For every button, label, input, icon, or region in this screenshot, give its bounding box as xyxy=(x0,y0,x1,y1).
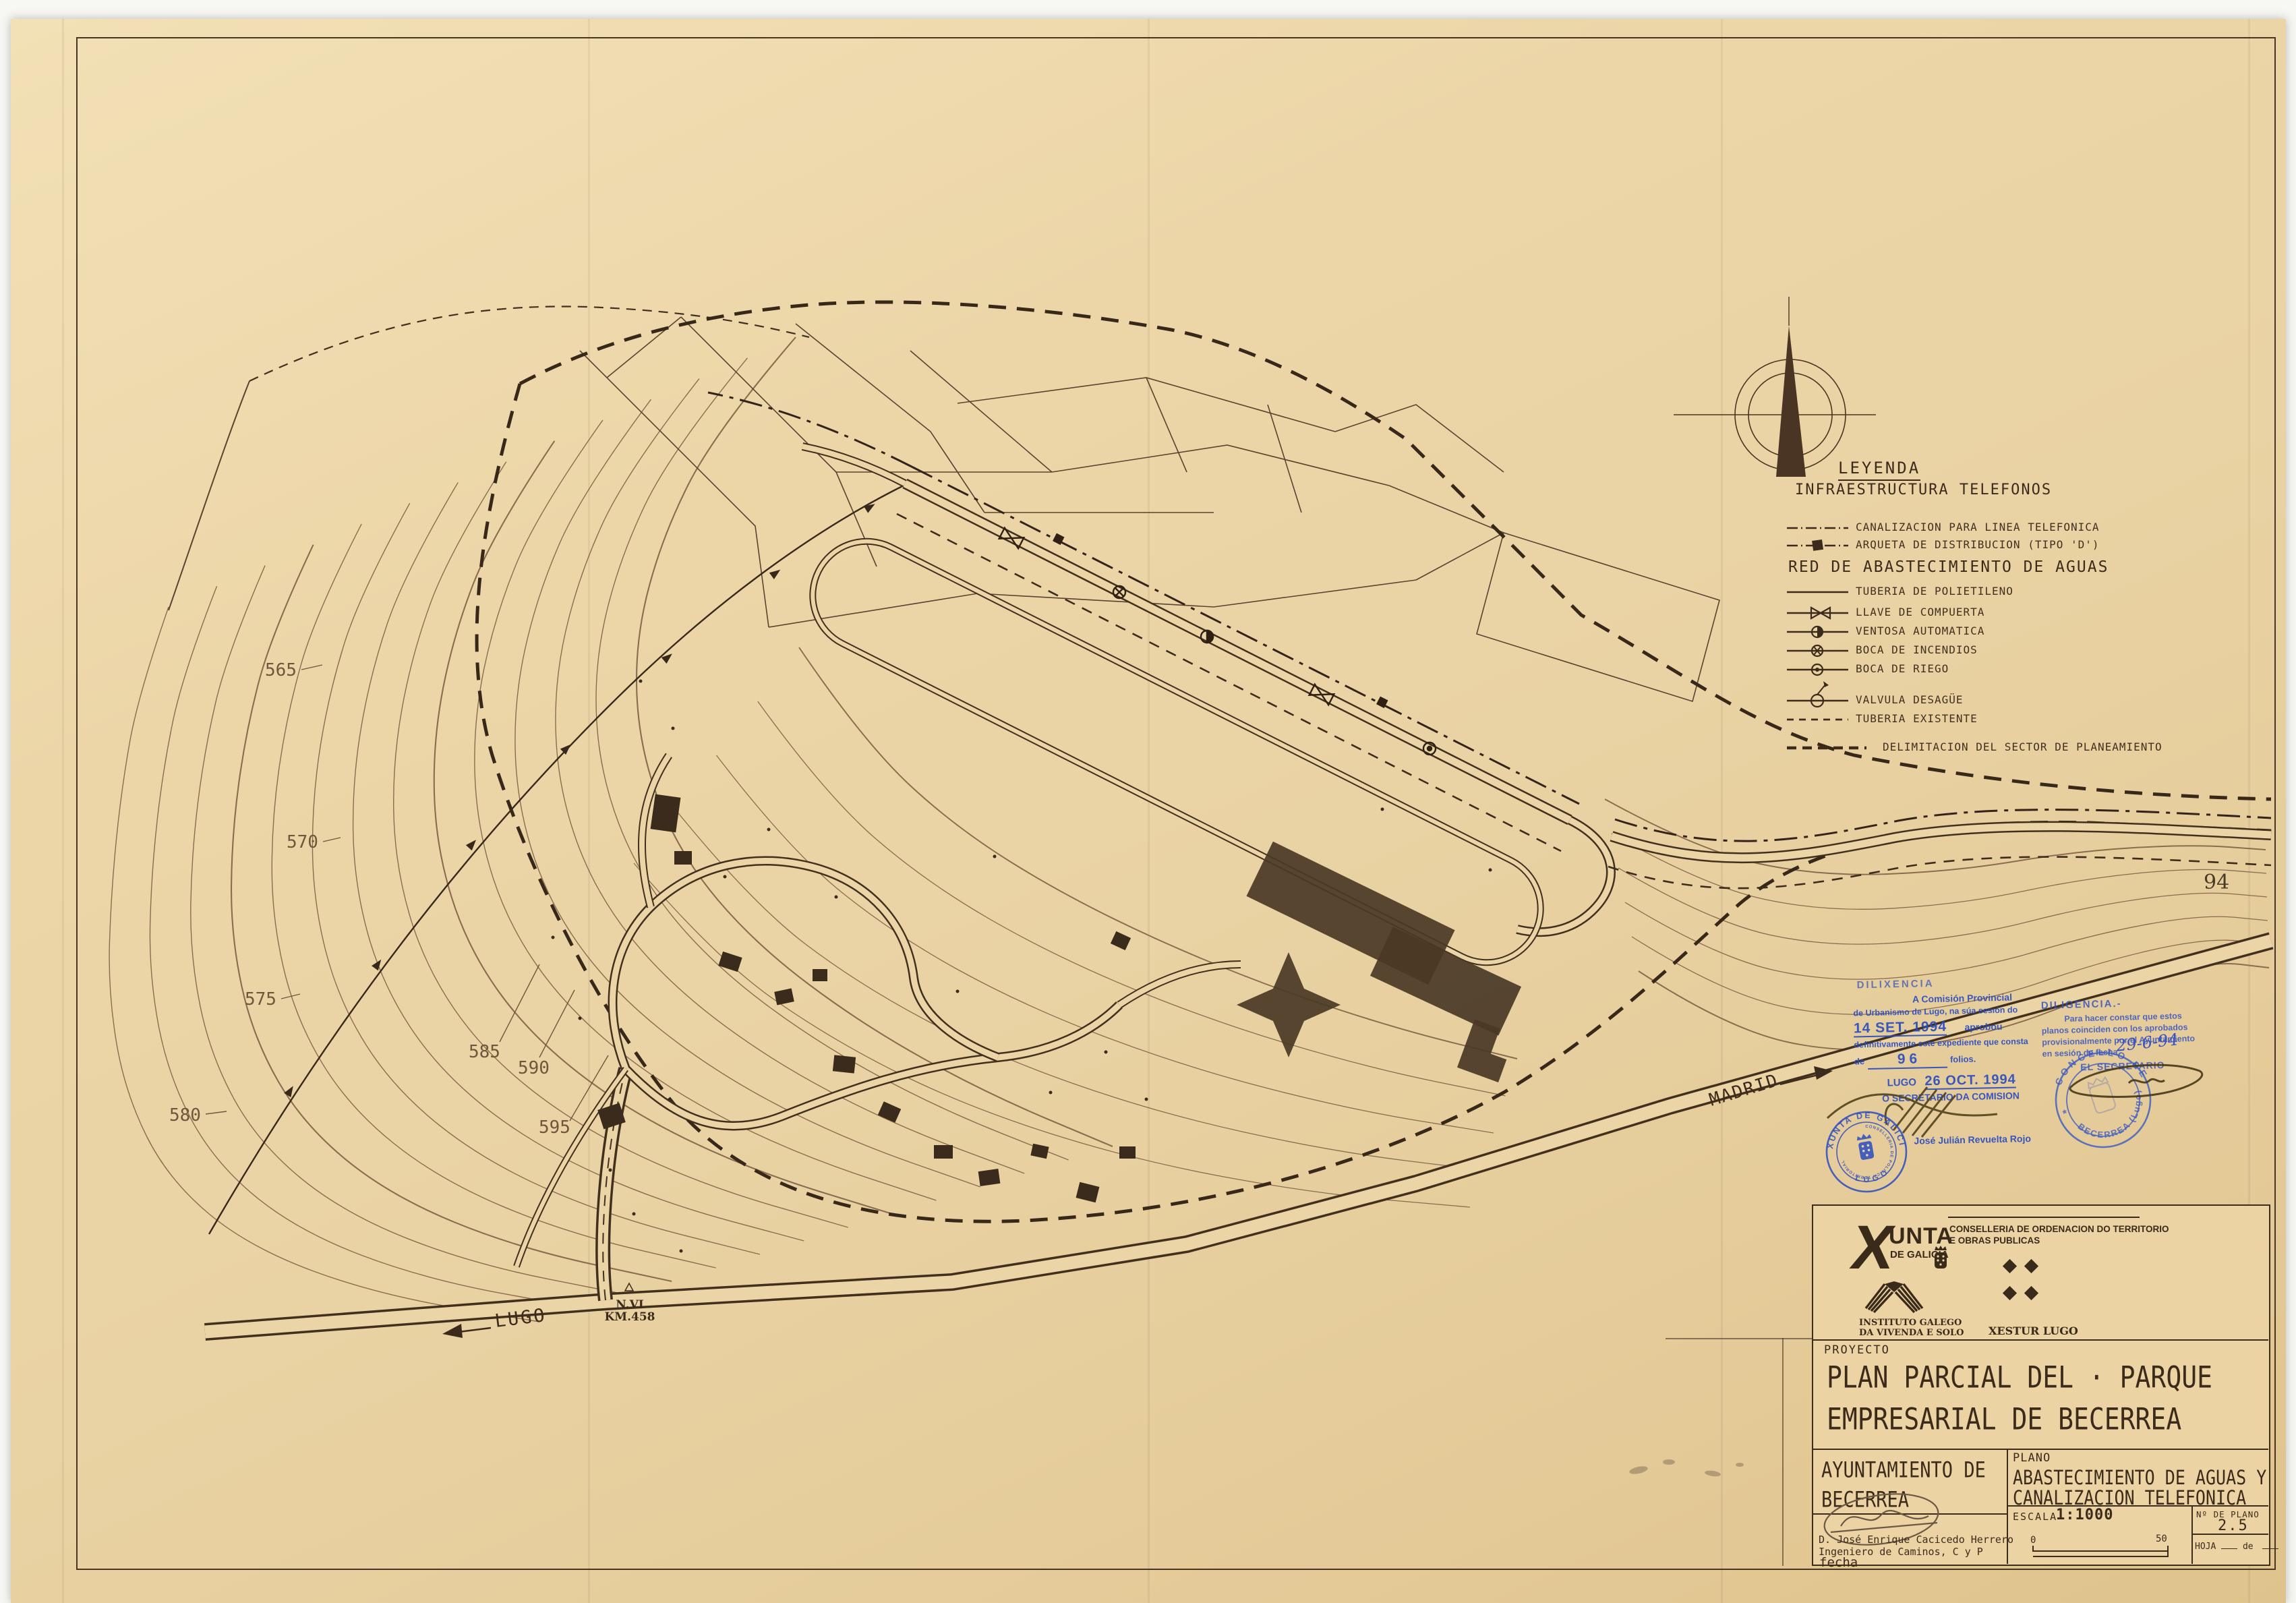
stamp-date-approved: 14 SET. 1994 xyxy=(1854,1019,1947,1038)
galicia-crest-icon xyxy=(1932,1245,1949,1272)
svg-text:585: 585 xyxy=(469,1042,500,1062)
hoja-blank xyxy=(2221,1540,2237,1549)
legend-item: VALVULA DESAGÜE xyxy=(1786,678,1850,708)
engineer-name: D. José Enrique Cacicedo Herrero xyxy=(1819,1534,2013,1546)
legend-item: BOCA DE INCENDIOS xyxy=(1786,643,1850,661)
existing-pipe-icon xyxy=(1786,712,1850,727)
ink-smudge xyxy=(1628,1459,1744,1478)
conselleria-line1: CONSELLERIA DE ORDENACION DO TERRITORIO xyxy=(1949,1223,2169,1235)
instituto-caption-line2: DA VIVENDA E SOLO xyxy=(1859,1328,1964,1338)
gate-valve-icon xyxy=(1786,606,1850,620)
scalebar-zero: 0 xyxy=(2030,1535,2036,1546)
irrigation-outlet-icon xyxy=(1786,662,1850,677)
hoja-de-blank xyxy=(2262,1540,2278,1549)
ayuntamiento-line1: AYUNTAMIENTO DE xyxy=(1821,1458,1986,1483)
proyecto-title-line1: PLAN PARCIAL DEL · PARQUE xyxy=(1827,1360,2212,1395)
num-plano-value: 2.5 xyxy=(2218,1517,2249,1534)
legend-item: TUBERIA EXISTENTE xyxy=(1786,712,1850,730)
title-block: X UNTA DE GALICIA CONSELLERIA DE ORDENAC… xyxy=(1812,1204,2270,1566)
instituto-vivenda-logo xyxy=(1862,1281,1926,1316)
stamp-heading: DILIXENCIA xyxy=(1856,977,2011,991)
km-marker-triangle xyxy=(625,1283,633,1291)
conselleria-line2: E OBRAS PUBLICAS xyxy=(1949,1235,2169,1246)
logo-divider-rule xyxy=(1948,1217,2140,1218)
map-point-marks xyxy=(552,680,1492,1253)
village-houses xyxy=(597,794,1136,1203)
nvi-label: N.VI xyxy=(616,1298,644,1312)
page-number: 94 xyxy=(2204,871,2229,894)
legend-item: LLAVE DE COMPUERTA xyxy=(1786,606,1850,623)
svg-text:575: 575 xyxy=(245,989,276,1010)
extension-line xyxy=(1782,1338,1784,1566)
air-valve-icon xyxy=(1786,624,1850,639)
instituto-caption-line1: INSTITUTO GALEGO xyxy=(1859,1318,1964,1328)
dirt-track-dashed xyxy=(249,306,809,381)
escala-label: ESCALA xyxy=(2013,1511,2057,1523)
road-network xyxy=(205,446,2271,1332)
svg-text:565: 565 xyxy=(265,660,297,680)
xestur-logo xyxy=(1999,1257,2042,1304)
scalebar-fifty: 50 xyxy=(2156,1534,2167,1544)
graphic-scale-bar xyxy=(2029,1546,2174,1559)
polyethylene-pipe-icon xyxy=(1786,585,1850,600)
legend-aguas-header: RED DE ABASTECIMIENTO DE AGUAS xyxy=(1788,558,2109,576)
scanned-plan-sheet: { "colors": {"paper": "#ebd3a4", "ink": … xyxy=(0,0,2296,1603)
legend-item-delimitation: DELIMITACION DEL SECTOR DE PLANEAMIENTO xyxy=(1786,740,1868,758)
proyecto-title-line2: EMPRESARIAL DE BECERREA xyxy=(1827,1401,2181,1436)
svg-text:595: 595 xyxy=(539,1117,570,1138)
legend-item: TUBERIA DE POLIETILENO xyxy=(1786,585,1850,602)
stamp-folios-count: 9 6 xyxy=(1867,1051,1947,1070)
proyecto-label: PROYECTO xyxy=(1824,1343,1890,1357)
drain-valve-icon xyxy=(1786,678,1850,708)
legend-telefonos-header: INFRAESTRUCTURA TELEFONOS xyxy=(1795,482,2052,498)
km-label: KM.458 xyxy=(605,1310,655,1324)
mayor-signature xyxy=(2065,1057,2216,1105)
svg-text:570: 570 xyxy=(287,832,318,852)
legend-item: VENTOSA AUTOMATICA xyxy=(1786,624,1850,642)
fecha-label: fecha xyxy=(1819,1555,1858,1570)
svg-text:590: 590 xyxy=(518,1058,550,1078)
hill-edge-line xyxy=(169,381,249,610)
fire-hydrant-icon xyxy=(1786,643,1850,658)
bold-dashed-line-icon xyxy=(1786,740,1868,755)
escala-value: 1:1000 xyxy=(2056,1507,2113,1523)
parcel-lines xyxy=(580,317,1719,701)
legend-item: CANALIZACION PARA LINEA TELEFONICA xyxy=(1786,521,1850,538)
dash-dot-line-icon xyxy=(1786,521,1850,535)
legend-item: ARQUETA DE DISTRIBUCION (TIPO 'D') xyxy=(1786,538,1850,556)
contour-elevation-labels: 565 570 575 580 585 590 595 xyxy=(169,660,570,1138)
distribution-manhole-icon xyxy=(1786,538,1850,553)
hoja-row: HOJA de xyxy=(2195,1540,2278,1552)
plano-label: PLANO xyxy=(2013,1451,2051,1465)
xestur-caption: XESTUR LUGO xyxy=(1989,1324,2078,1337)
svg-text:LUGO: LUGO xyxy=(1852,1164,1893,1187)
extension-line xyxy=(1666,1338,1812,1339)
svg-text:580: 580 xyxy=(169,1105,201,1126)
plano-line2: CANALIZACION TELEFONICA xyxy=(2013,1486,2246,1509)
xunta-galicia-round-seal: XUNTA DE GALICIA CONSELLERIA DE POLITICA… xyxy=(1817,1103,1916,1201)
legend-item: BOCA DE RIEGO xyxy=(1786,662,1850,680)
legend-title: LEYENDA xyxy=(1838,459,1920,481)
